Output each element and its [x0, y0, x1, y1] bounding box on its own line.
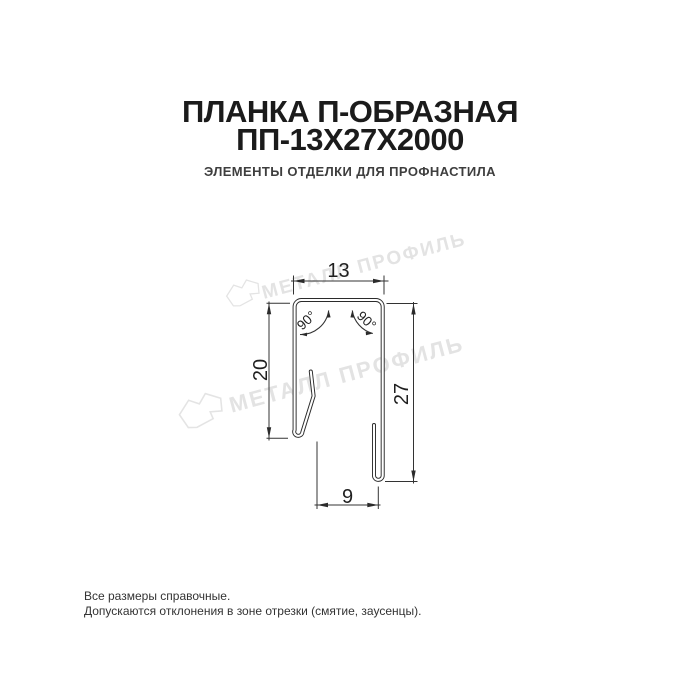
footer-note-line1: Все размеры справочные. [84, 589, 421, 604]
watermark-bottom-left: МЕТАЛЛ ПРОФИЛЬ [176, 326, 467, 431]
dim-label-20: 20 [250, 359, 272, 381]
dim-label-13: 13 [327, 260, 349, 282]
dim-label-9: 9 [342, 486, 353, 508]
arrow-27-top [411, 304, 415, 315]
dim-label-27: 27 [391, 383, 413, 405]
watermark-text: МЕТАЛЛ ПРОФИЛЬ [260, 229, 469, 304]
footer-notes: Все размеры справочные. Допускаются откл… [84, 589, 421, 619]
footer-note-line2: Допускаются отклонения в зоне отрезки (с… [84, 604, 421, 619]
product-drawing-page: ПЛАНКА П-ОБРАЗНАЯ ПП-13Х27Х2000 ЭЛЕМЕНТЫ… [0, 0, 700, 700]
arrow-20-bottom [267, 427, 271, 438]
arrow-9-left [317, 503, 328, 507]
arrow-20-top [267, 303, 271, 314]
arrow-13-right [373, 279, 384, 283]
arrow-9-right [367, 503, 378, 507]
metal-profil-logo-icon [224, 277, 262, 308]
arrow-27-bottom [411, 471, 415, 482]
angle-label-right: 90° [354, 308, 379, 333]
metal-profil-logo-icon [176, 390, 226, 431]
angle-label-left: 90° [294, 308, 319, 333]
